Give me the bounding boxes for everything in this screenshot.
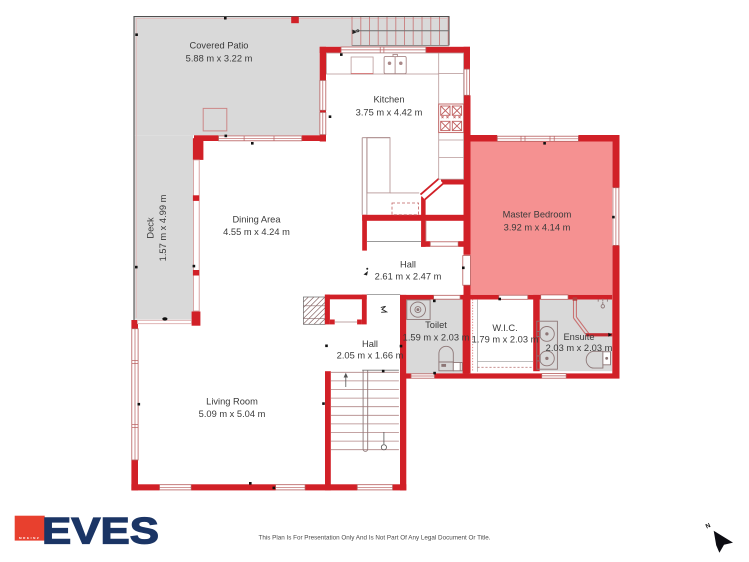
svg-text:5.09 m x 5.04 m: 5.09 m x 5.04 m <box>199 409 266 419</box>
svg-text:1.57 m x 4.99 m: 1.57 m x 4.99 m <box>158 194 168 261</box>
svg-text:Hall: Hall <box>362 339 378 349</box>
svg-text:Living Room: Living Room <box>206 397 258 407</box>
svg-text:EVES: EVES <box>42 511 159 552</box>
svg-text:MREINZ: MREINZ <box>19 536 40 540</box>
svg-text:Dining Area: Dining Area <box>232 215 281 225</box>
svg-text:Deck: Deck <box>145 217 155 239</box>
svg-text:Ensuite: Ensuite <box>563 332 594 342</box>
svg-text:1.79 m x 2.03 m: 1.79 m x 2.03 m <box>472 335 539 345</box>
svg-text:2.61 m x 2.47 m: 2.61 m x 2.47 m <box>375 271 442 281</box>
svg-text:3.92 m x 4.14 m: 3.92 m x 4.14 m <box>504 222 571 232</box>
svg-text:2.05 m x 1.66 m: 2.05 m x 1.66 m <box>337 351 404 361</box>
svg-text:Hall: Hall <box>400 260 416 270</box>
svg-text:This Plan Is For Presentation: This Plan Is For Presentation Only And I… <box>258 535 490 542</box>
svg-text:W.I.C.: W.I.C. <box>492 323 517 333</box>
svg-text:5.88 m x 3.22 m: 5.88 m x 3.22 m <box>186 54 253 64</box>
svg-text:1.59 m x 2.03 m: 1.59 m x 2.03 m <box>403 333 470 343</box>
svg-text:3.75 m x 4.42 m: 3.75 m x 4.42 m <box>356 108 423 118</box>
svg-text:4.55 m x 4.24 m: 4.55 m x 4.24 m <box>223 227 290 237</box>
svg-text:Covered Patio: Covered Patio <box>190 41 249 51</box>
svg-text:Toilet: Toilet <box>425 320 447 330</box>
svg-text:N: N <box>705 522 712 530</box>
svg-text:Kitchen: Kitchen <box>373 95 404 105</box>
svg-text:Master Bedroom: Master Bedroom <box>503 210 572 220</box>
svg-text:2.03 m x 2.03 m: 2.03 m x 2.03 m <box>546 343 613 353</box>
